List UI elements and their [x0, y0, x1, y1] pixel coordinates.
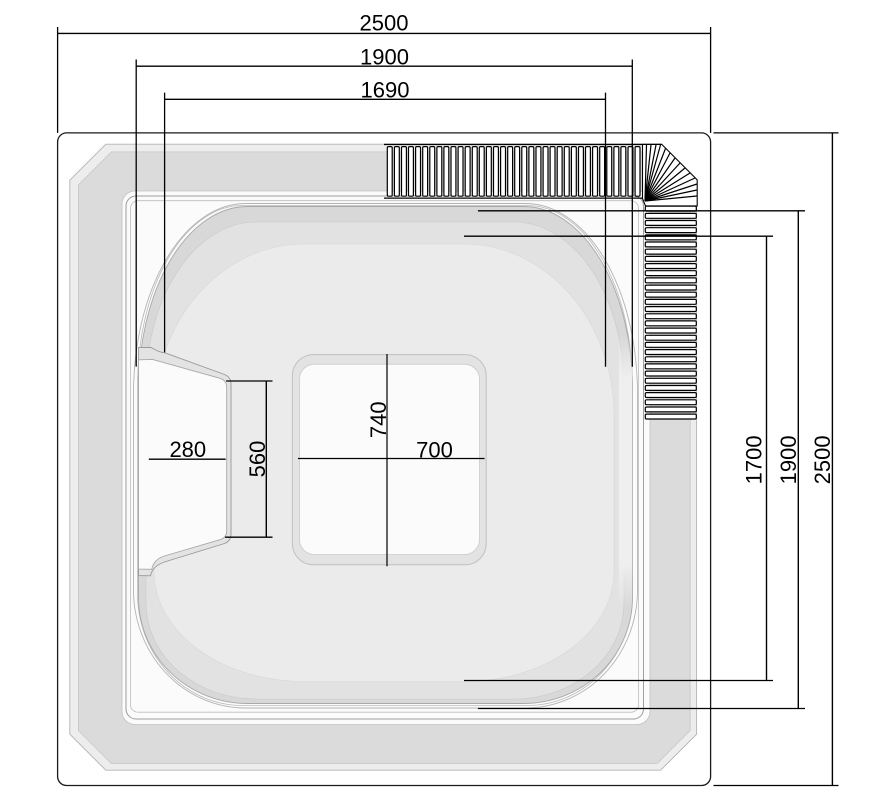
- svg-text:1690: 1690: [361, 78, 410, 103]
- svg-text:1900: 1900: [360, 45, 409, 70]
- svg-text:2500: 2500: [810, 435, 835, 484]
- svg-text:560: 560: [245, 441, 270, 478]
- svg-text:1700: 1700: [741, 435, 766, 484]
- svg-text:2500: 2500: [360, 11, 409, 36]
- svg-text:280: 280: [169, 437, 206, 462]
- svg-text:1900: 1900: [776, 435, 801, 484]
- svg-text:740: 740: [366, 401, 391, 438]
- svg-text:700: 700: [416, 438, 453, 463]
